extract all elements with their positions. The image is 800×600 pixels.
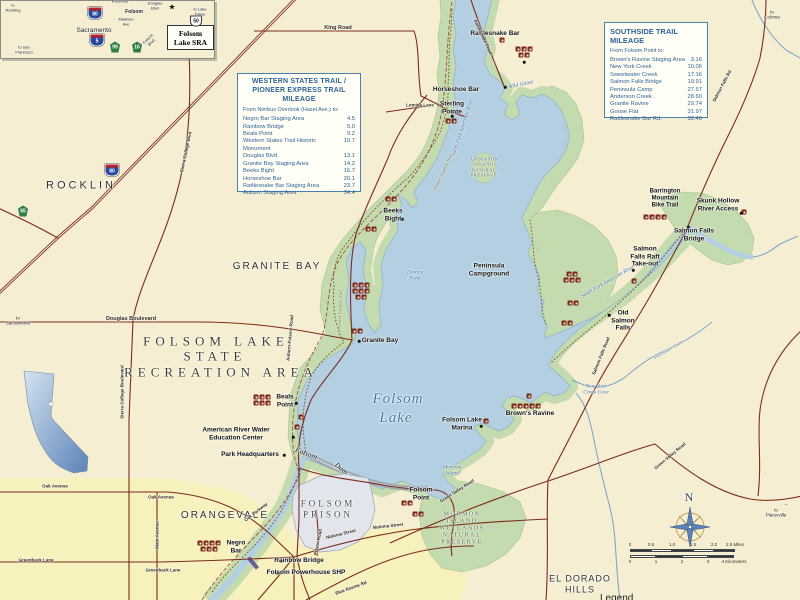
mileage-value: 9.2: [347, 131, 355, 138]
legend-label: Legend: [600, 593, 633, 600]
scale-segment: [693, 549, 714, 552]
amenity-icon: [260, 401, 265, 406]
amenity-icon: [568, 321, 573, 326]
mileage-row: Beals Point9.2: [243, 131, 355, 138]
mileage-destination: Brown's Ravine Staging Area: [610, 57, 685, 64]
poi-dot: [283, 454, 286, 457]
amenity-icon: [527, 394, 532, 399]
scale-tick-label: 2: [681, 559, 684, 564]
scale-segment: [714, 549, 735, 552]
amenity-icon: [564, 278, 569, 283]
mileage-value: 34.4: [344, 190, 355, 197]
scale-segment: [630, 555, 656, 558]
amenity-icons-shore-north: [366, 227, 377, 232]
poi-dot: [280, 560, 283, 563]
southside-box-rows: Brown's Ravine Staging Area3.16New York …: [610, 57, 702, 124]
scale-tick-label: 3: [707, 559, 710, 564]
amenity-icon: [574, 301, 579, 306]
amenity-icon: [359, 283, 364, 288]
amenity-icon: [656, 215, 661, 220]
inset-us-50-shield: 50: [190, 16, 202, 27]
mileage-destination: Granite Bay Staging Area: [243, 161, 308, 168]
scale-segment: [630, 549, 651, 552]
amenity-icons-beals-point: [254, 395, 271, 406]
western-states-trail-mileage-box: WESTERN STATES TRAIL / PIONEER EXPRESS T…: [237, 73, 361, 192]
mileage-destination: Auburn Staging Area: [243, 190, 297, 197]
mileage-row: Peninsula Camp27.57: [610, 87, 702, 94]
amenity-icon: [352, 329, 357, 334]
southside-box-title: SOUTHSIDE TRAIL MILEAGE: [610, 27, 702, 45]
poi-dot: [608, 314, 611, 317]
western-box-rows: Negro Bar Staging Area4.5Rainbow Bridge5…: [243, 116, 355, 197]
poi-dot: [276, 572, 279, 575]
poi-dot: [292, 436, 295, 439]
mileage-value: 3.16: [691, 57, 702, 64]
mileage-value: 10.7: [344, 138, 355, 153]
amenity-icon: [353, 283, 358, 288]
amenity-icon: [742, 210, 747, 215]
mileage-row: Horseshoe Bar20.1: [243, 176, 355, 183]
amenity-icons-salmon-falls-bridge: [644, 215, 667, 220]
inset-us-50-shield: 50: [193, 18, 199, 24]
amenity-icon: [266, 401, 271, 406]
amenity-icon: [260, 395, 265, 400]
amenity-icons-peninsula: [564, 272, 581, 283]
poi-dot: [401, 218, 404, 221]
amenity-icon: [644, 215, 649, 220]
mileage-value: 19.91: [687, 79, 702, 86]
amenity-icon: [567, 272, 572, 277]
amenity-icon: [254, 401, 259, 406]
scale-tick-label: 4 Kilometers: [721, 559, 746, 564]
western-box-title: WESTERN STATES TRAIL / PIONEER EXPRESS T…: [243, 78, 355, 104]
mileage-value: 28.60: [687, 94, 702, 101]
anchor-icon-marina: [484, 419, 489, 424]
amenity-icon: [573, 272, 578, 277]
mileage-row: Granite Bay Staging Area14.2: [243, 161, 355, 168]
interstate-80-shield: 80: [109, 168, 115, 174]
amenity-icon: [392, 197, 397, 202]
mileage-value: 32.46: [687, 116, 702, 123]
amenity-icon: [386, 197, 391, 202]
amenity-icon: [365, 283, 370, 288]
compass-north-label: N: [685, 490, 694, 504]
amenity-icons-browns-ravine: [512, 404, 541, 409]
amenity-icon: [446, 119, 451, 124]
mileage-row: Rattlesnake Bar Rd.32.46: [610, 116, 702, 123]
poi-dot: [740, 212, 743, 215]
amenity-icons-sterling-pointe: [446, 119, 457, 124]
amenity-icon: [362, 295, 367, 300]
amenity-icon: [372, 227, 377, 232]
mileage-row: Sweetwater Creek17.16: [610, 72, 702, 79]
amenity-icon: [204, 541, 209, 546]
amenity-icon: [570, 278, 575, 283]
scale-tick-label: 1: [655, 559, 658, 564]
amenity-icon: [299, 415, 304, 420]
mileage-row: Negro Bar Staging Area4.5: [243, 116, 355, 123]
mileage-value: 10.06: [687, 64, 702, 71]
mileage-value: 5.0: [347, 124, 355, 131]
mileage-value: 29.74: [687, 101, 702, 108]
amenity-icons-raft-take-out: [632, 279, 637, 284]
mileage-destination: Horseshoe Bar: [243, 176, 282, 183]
mileage-destination: Beeks Bight: [243, 168, 274, 175]
inset-interstate-80-shield: 80: [92, 11, 98, 17]
mileage-row: Goose Flat31.97: [610, 109, 702, 116]
amenity-icon: [198, 541, 203, 546]
scale-tick-label: 0.5: [648, 542, 654, 547]
amenity-icon: [484, 419, 489, 424]
mileage-row: Douglas Blvd.13.1: [243, 153, 355, 160]
amenity-icon: [525, 53, 530, 58]
amenity-icon: [210, 541, 215, 546]
inset-state-route-99-shield: 99: [112, 44, 118, 50]
mileage-value: 20.1: [344, 176, 355, 183]
amenity-icon: [359, 289, 364, 294]
amenity-icons-browns-ravine-tent: [527, 394, 532, 399]
scale-segment: [708, 555, 734, 558]
amenity-icon: [201, 547, 206, 552]
poi-dot: [523, 61, 526, 64]
mileage-destination: Granite Ravine: [610, 101, 649, 108]
inset-sra-label-box: Folsom Lake SRA: [167, 25, 214, 50]
western-box-subtitle: From Nimbus Overlook (Hazel Ave.) to:: [243, 107, 355, 113]
interstate-80-shield: 80: [105, 164, 120, 177]
scale-tick-label: 1.0: [669, 542, 675, 547]
scale-tick-label: 1.5: [690, 542, 696, 547]
mileage-destination: New York Creek: [610, 64, 652, 71]
amenity-icons-beeks-bight: [386, 197, 397, 202]
amenity-icon: [512, 404, 517, 409]
mileage-destination: Peninsula Camp: [610, 87, 653, 94]
state-route-65-shield: 65: [20, 208, 26, 214]
mileage-value: 23.7: [344, 183, 355, 190]
amenity-icon: [650, 215, 655, 220]
amenity-icon: [524, 404, 529, 409]
scale-bar: 00.51.01.52.02.5 Miles01234 Kilometers: [630, 543, 800, 567]
amenity-icon: [353, 289, 358, 294]
scale-segment: [672, 549, 693, 552]
scale-tick-label: 0: [629, 559, 632, 564]
inset-interstate-80-shield: 80: [88, 7, 103, 20]
amenity-icon: [528, 47, 533, 52]
mileage-destination: Sweetwater Creek: [610, 72, 657, 79]
mileage-row: Beeks Bight16.7: [243, 168, 355, 175]
amenity-icon: [216, 541, 221, 546]
amenity-icon: [500, 38, 505, 43]
scale-tick-label: 2.0: [711, 542, 717, 547]
mileage-row: Brown's Ravine Staging Area3.16: [610, 57, 702, 64]
poi-dot: [295, 402, 298, 405]
amenity-icons-rattlesnake-bar: [500, 38, 505, 43]
amenity-icon: [568, 301, 573, 306]
amenity-icons-granite-bay-shore: [353, 283, 370, 300]
poi-dot: [358, 340, 361, 343]
amenity-icon: [632, 279, 637, 284]
amenity-icons-granite-bay: [352, 329, 363, 334]
amenity-icon: [519, 53, 524, 58]
mileage-row: Granite Ravine29.74: [610, 101, 702, 108]
amenity-icon: [356, 295, 361, 300]
mileage-value: 13.1: [344, 153, 355, 160]
southside-box-subtitle: From Folsom Point to:: [610, 48, 702, 54]
amenity-icons-beals-shore-1: [299, 415, 304, 420]
mileage-value: 27.57: [687, 87, 702, 94]
mileage-value: 31.97: [687, 109, 702, 116]
amenity-icon: [536, 404, 541, 409]
mileage-row: Auburn Staging Area34.4: [243, 190, 355, 197]
amenity-icons-north-cove: [516, 47, 533, 58]
amenity-icons-negro-bar: [198, 541, 221, 552]
amenity-icon: [366, 227, 371, 232]
amenity-icon: [365, 289, 370, 294]
amenity-icon: [402, 501, 407, 506]
amenity-icon: [413, 512, 418, 517]
scale-segment: [682, 555, 708, 558]
scale-tick-label: 2.5 Miles: [726, 542, 744, 547]
mileage-destination: Rainbow Bridge: [243, 124, 284, 131]
mileage-row: Western States Trail Historic Monument10…: [243, 138, 355, 153]
amenity-icon: [254, 395, 259, 400]
mileage-value: 16.7: [344, 168, 355, 175]
mileage-destination: Beals Point: [243, 131, 272, 138]
amenity-icon: [662, 215, 667, 220]
mileage-row: Rattlesnake Bar Staging Area23.7: [243, 183, 355, 190]
mileage-value: 4.5: [347, 116, 355, 123]
amenity-icon: [419, 512, 424, 517]
amenity-icon: [516, 47, 521, 52]
mileage-row: Rainbow Bridge5.0: [243, 124, 355, 131]
inset-state-route-16-shield: 16: [134, 44, 140, 50]
mileage-row: Anderson Creek28.60: [610, 94, 702, 101]
amenity-icons-old-salmon-falls-2: [562, 321, 573, 326]
scale-tick-label: 0: [629, 542, 632, 547]
amenity-icon: [518, 404, 523, 409]
folsom-lake-sra-map: Folsom Lake SRA WESTERN STATES TRAIL / P…: [0, 0, 800, 600]
amenity-icon: [576, 278, 581, 283]
amenity-icon: [408, 501, 413, 506]
poi-dot: [687, 226, 690, 229]
amenity-icons-old-salmon-falls-1: [568, 301, 579, 306]
amenity-icon: [522, 47, 527, 52]
mileage-destination: Negro Bar Staging Area: [243, 116, 304, 123]
mileage-destination: Rattlesnake Bar Staging Area: [243, 183, 319, 190]
amenity-icons-folsom-point-1: [402, 501, 413, 506]
amenity-icons-beals-shore-2: [295, 425, 300, 430]
amenity-icon: [530, 404, 535, 409]
poi-dot: [451, 115, 454, 118]
mileage-row: Salmon Falls Bridge19.91: [610, 79, 702, 86]
mileage-row: New York Creek10.06: [610, 64, 702, 71]
mileage-destination: Douglas Blvd.: [243, 153, 279, 160]
mileage-destination: Western States Trail Historic Monument: [243, 138, 344, 153]
mileage-value: 14.2: [344, 161, 355, 168]
poi-dot: [504, 86, 507, 89]
poi-dot: [632, 269, 635, 272]
amenity-icon: [266, 395, 271, 400]
amenity-icons-skunk-hollow: [742, 210, 747, 215]
amenity-icons-folsom-point-2: [413, 512, 424, 517]
mileage-destination: Goose Flat: [610, 109, 638, 116]
inset-interstate-5-shield: 5: [90, 34, 105, 47]
inset-interstate-5-shield: 5: [96, 38, 99, 44]
scale-segment: [651, 549, 672, 552]
scale-segment: [656, 555, 682, 558]
mileage-destination: Salmon Falls Bridge: [610, 79, 662, 86]
amenity-icon: [358, 329, 363, 334]
amenity-icon: [452, 119, 457, 124]
amenity-icon: [295, 425, 300, 430]
mileage-destination: Anderson Creek: [610, 94, 652, 101]
mileage-value: 17.16: [687, 72, 702, 79]
mileage-destination: Rattlesnake Bar Rd.: [610, 116, 662, 123]
amenity-icon: [213, 547, 218, 552]
poi-dot: [480, 425, 483, 428]
amenity-icon: [207, 547, 212, 552]
southside-trail-mileage-box: SOUTHSIDE TRAIL MILEAGE From Folsom Poin…: [604, 22, 708, 118]
amenity-icon: [562, 321, 567, 326]
